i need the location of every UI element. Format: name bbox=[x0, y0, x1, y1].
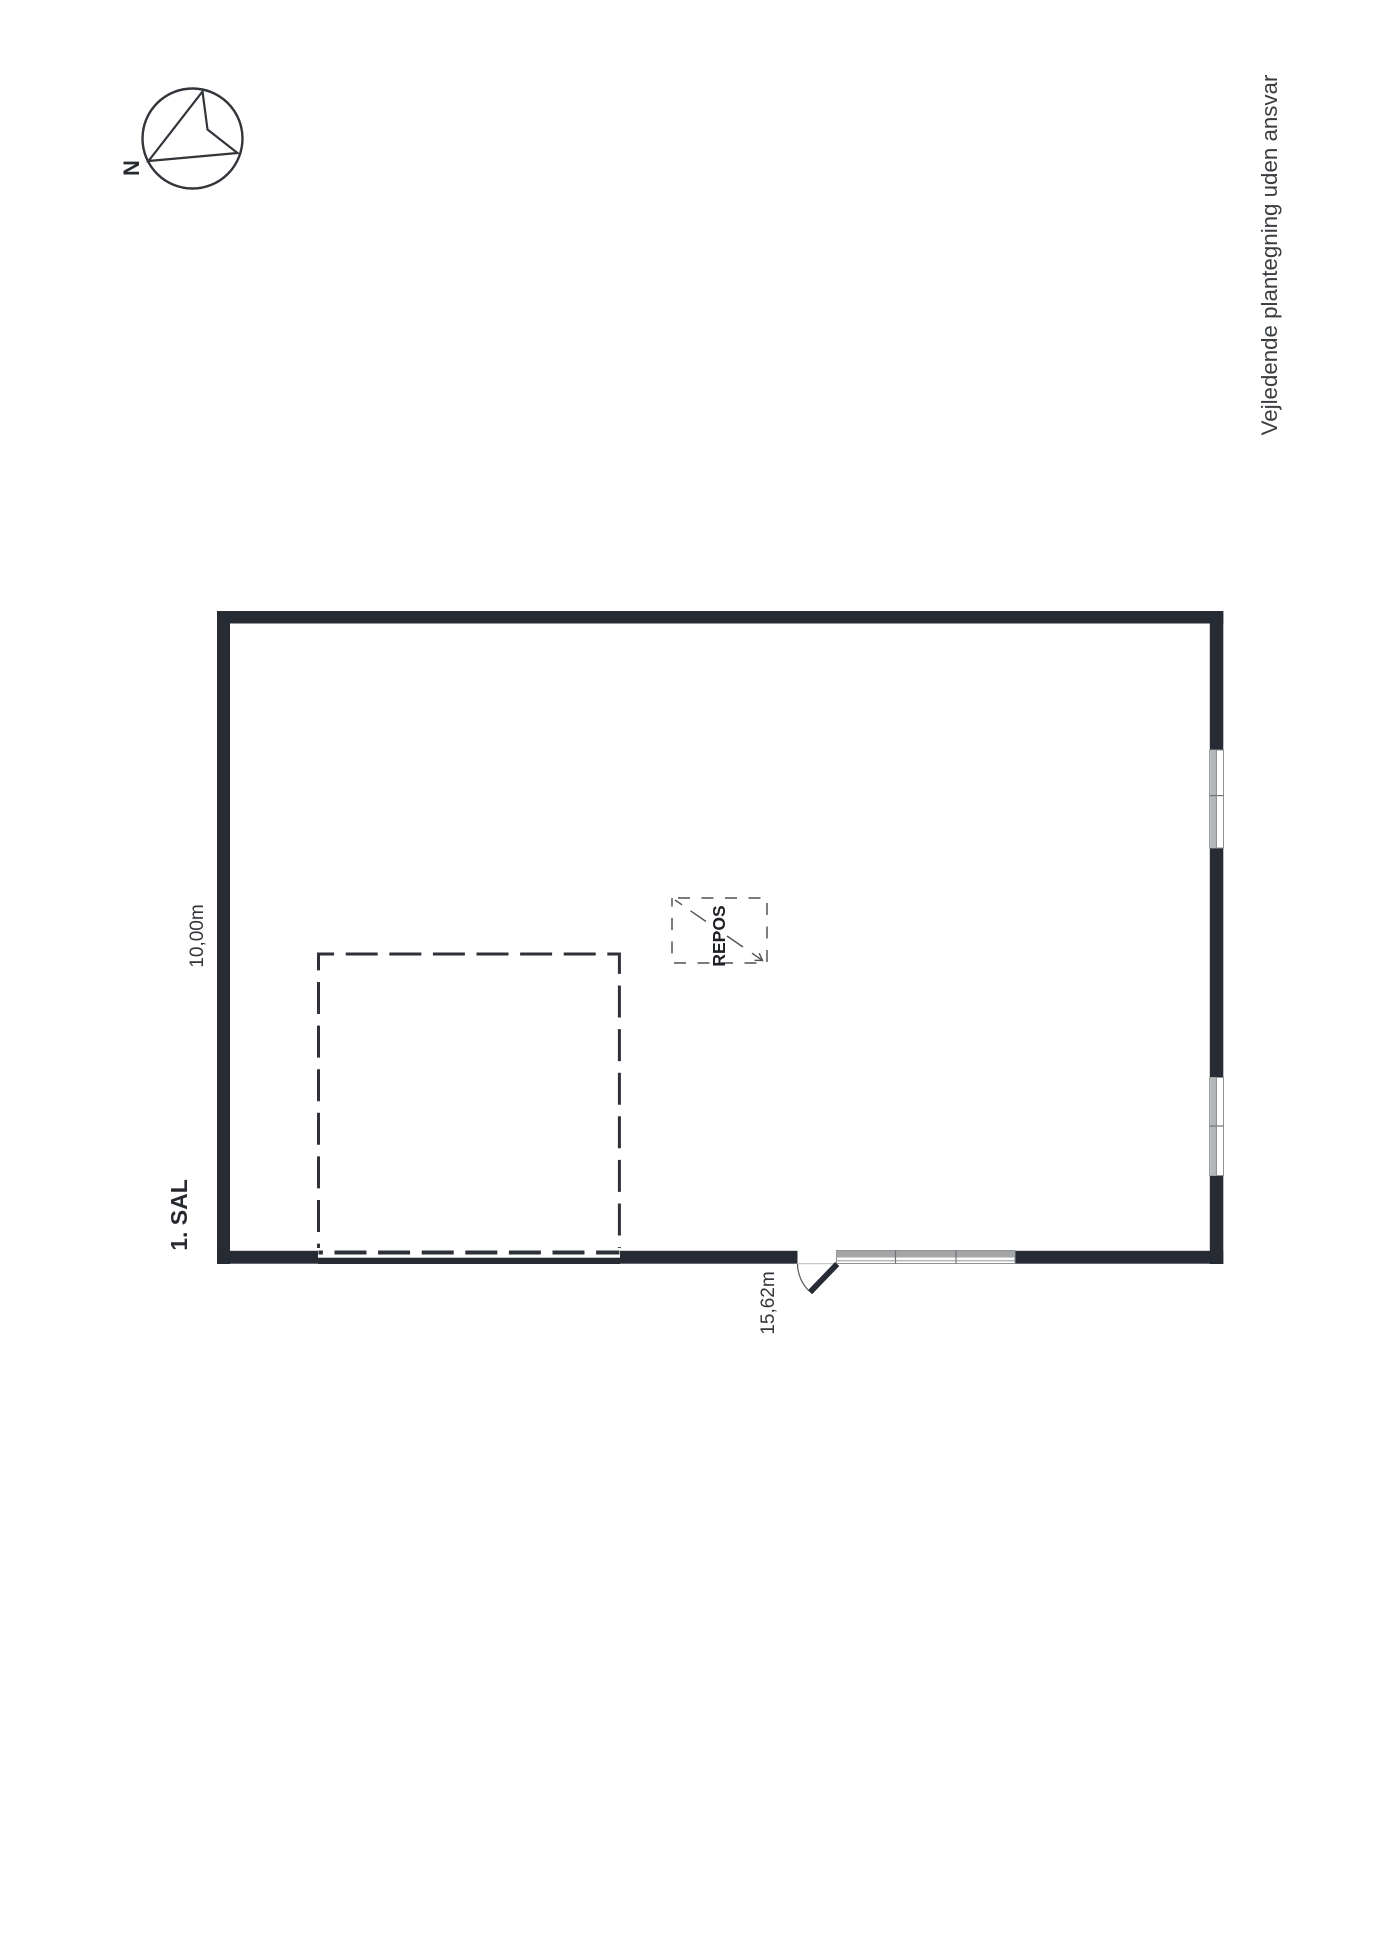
svg-text:1. SAL: 1. SAL bbox=[166, 1179, 192, 1251]
svg-text:REPOS: REPOS bbox=[709, 905, 729, 966]
svg-text:Vejledende plantegning uden an: Vejledende plantegning uden ansvar bbox=[1257, 74, 1282, 435]
svg-text:15,62m: 15,62m bbox=[758, 1271, 779, 1334]
svg-text:10,00m: 10,00m bbox=[187, 904, 208, 967]
svg-text:N: N bbox=[119, 160, 144, 176]
